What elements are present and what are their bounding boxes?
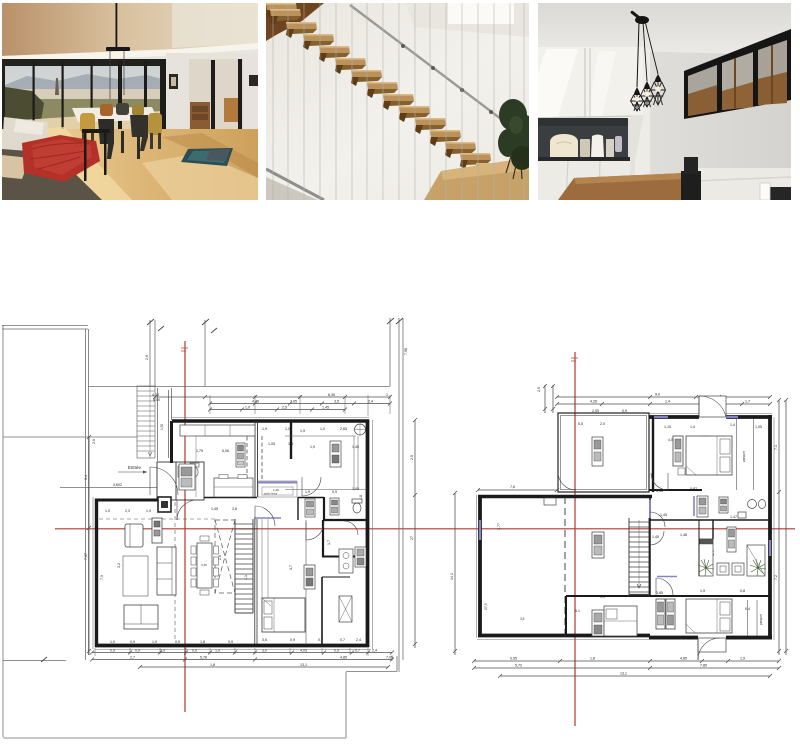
- svg-text:1,8: 1,8: [200, 640, 205, 644]
- svg-text:1,9: 1,9: [262, 427, 267, 431]
- svg-text:1,45: 1,45: [660, 513, 667, 517]
- svg-text:0,7: 0,7: [340, 638, 345, 642]
- svg-text:4,45: 4,45: [252, 400, 259, 404]
- svg-text:8,35: 8,35: [328, 393, 335, 397]
- svg-text:1,9: 1,9: [305, 490, 310, 494]
- svg-text:3,45: 3,45: [201, 563, 207, 567]
- svg-text:0,9: 0,9: [334, 649, 339, 653]
- svg-text:1,8: 1,8: [210, 663, 215, 667]
- svg-text:7,85: 7,85: [700, 664, 707, 668]
- svg-text:Entrée: Entrée: [128, 465, 141, 470]
- svg-text:7,6: 7,6: [510, 485, 515, 489]
- svg-text:1,05: 1,05: [268, 442, 275, 446]
- svg-text:4,00: 4,00: [153, 398, 160, 402]
- svg-text:3,0: 3,0: [262, 649, 267, 653]
- svg-text:7,2: 7,2: [774, 575, 778, 580]
- svg-text:4,26: 4,26: [590, 400, 597, 404]
- svg-text:1,50: 1,50: [160, 424, 164, 430]
- svg-text:7,05: 7,05: [386, 656, 393, 660]
- svg-text:3,8: 3,8: [232, 507, 237, 511]
- svg-text:2,7: 2,7: [130, 656, 135, 660]
- svg-text:1,8: 1,8: [590, 657, 595, 661]
- svg-text:0,9: 0,9: [192, 649, 197, 653]
- svg-text:5,1: 5,1: [575, 609, 580, 613]
- svg-text:2,6: 2,6: [145, 355, 149, 360]
- svg-text:1,0: 1,0: [320, 427, 325, 431]
- svg-text:1,9: 1,9: [310, 445, 315, 449]
- svg-text:3,6: 3,6: [520, 617, 525, 621]
- svg-text:0,9: 0,9: [110, 649, 115, 653]
- svg-text:13,1: 13,1: [620, 672, 627, 676]
- svg-text:3,5: 3,5: [334, 400, 339, 404]
- svg-text:4,85: 4,85: [680, 657, 687, 661]
- svg-text:4,85: 4,85: [340, 656, 347, 660]
- svg-text:1,0: 1,0: [110, 640, 115, 644]
- svg-text:2,5: 2,5: [282, 406, 287, 410]
- svg-text:7,98: 7,98: [404, 348, 408, 355]
- svg-text:5,78: 5,78: [200, 656, 207, 660]
- svg-text:1,05: 1,05: [755, 425, 762, 429]
- svg-text:0,95: 0,95: [510, 657, 517, 661]
- svg-text:13,1: 13,1: [300, 663, 307, 667]
- svg-text:1,47: 1,47: [730, 515, 737, 519]
- svg-text:5,06: 5,06: [222, 449, 229, 453]
- svg-text:2,5: 2,5: [410, 455, 414, 460]
- svg-text:27: 27: [410, 536, 414, 540]
- svg-text:7,0: 7,0: [100, 575, 104, 580]
- svg-text:7,1: 7,1: [774, 445, 778, 450]
- svg-text:0,7: 0,7: [355, 649, 360, 653]
- svg-text:2,0: 2,0: [92, 439, 96, 444]
- svg-text:1: 1: [386, 393, 388, 397]
- svg-text:7,05: 7,05: [290, 400, 297, 404]
- svg-text:1,45: 1,45: [211, 507, 218, 511]
- svg-text:2,65: 2,65: [340, 427, 347, 431]
- svg-text:1,9: 1,9: [160, 649, 165, 653]
- svg-text:1,0: 1,0: [105, 509, 110, 513]
- svg-text:1,7: 1,7: [745, 400, 750, 404]
- svg-text:1,9: 1,9: [215, 649, 220, 653]
- svg-text:1,4: 1,4: [690, 425, 695, 429]
- svg-text:1,7: 1,7: [327, 540, 331, 545]
- svg-text:1,77: 1,77: [497, 523, 501, 530]
- svg-text:parquet: parquet: [742, 451, 746, 462]
- svg-text:1,0: 1,0: [285, 427, 290, 431]
- svg-text:5,72: 5,72: [515, 664, 522, 668]
- svg-text:0,9: 0,9: [175, 640, 180, 644]
- svg-text:1,48: 1,48: [680, 533, 687, 537]
- svg-text:0,9: 0,9: [135, 649, 140, 653]
- svg-text:1,0: 1,0: [245, 406, 250, 410]
- svg-text:3,6: 3,6: [262, 638, 267, 642]
- svg-text:1,9: 1,9: [700, 589, 705, 593]
- svg-text:2,4: 2,4: [356, 638, 361, 642]
- svg-text:1,45: 1,45: [652, 535, 659, 539]
- svg-text:2,0: 2,0: [600, 422, 605, 426]
- svg-text:7,07: 7,07: [84, 553, 88, 560]
- svg-text:4,05: 4,05: [300, 649, 307, 653]
- svg-text:9,0: 9,0: [655, 393, 660, 397]
- svg-text:3,85: 3,85: [656, 591, 663, 595]
- svg-text:14,1: 14,1: [450, 573, 454, 580]
- svg-text:2,0: 2,0: [537, 387, 541, 392]
- svg-text:1,9: 1,9: [300, 429, 305, 433]
- svg-text:2,3: 2,3: [125, 509, 130, 513]
- svg-text:4,5: 4,5: [668, 438, 673, 442]
- svg-text:1,40: 1,40: [273, 488, 279, 492]
- svg-text:atelier fenetr: atelier fenetr: [264, 493, 277, 496]
- svg-text:1,4: 1,4: [730, 423, 735, 427]
- svg-text:0,9: 0,9: [130, 640, 135, 644]
- svg-text:1,45: 1,45: [322, 406, 329, 410]
- svg-text:1,9: 1,9: [740, 657, 745, 661]
- svg-text:2,4: 2,4: [372, 649, 377, 653]
- svg-text:4,03: 4,03: [152, 393, 159, 397]
- svg-text:0,8: 0,8: [740, 589, 745, 593]
- svg-text:3,4: 3,4: [84, 475, 88, 480]
- svg-text:1,9: 1,9: [152, 640, 157, 644]
- svg-text:3,2: 3,2: [117, 563, 121, 568]
- svg-text:1,10: 1,10: [664, 425, 671, 429]
- svg-text:5,5: 5,5: [578, 422, 583, 426]
- svg-text:1,9: 1,9: [146, 509, 151, 513]
- svg-text:3,7: 3,7: [289, 565, 293, 570]
- svg-text:3,602: 3,602: [113, 483, 122, 487]
- svg-text:0,9: 0,9: [332, 490, 337, 494]
- svg-text:2,4: 2,4: [368, 400, 373, 404]
- svg-text:parquet: parquet: [759, 614, 763, 625]
- svg-text:0,9: 0,9: [228, 640, 233, 644]
- svg-text:1,75: 1,75: [196, 449, 203, 453]
- svg-text:27,5: 27,5: [484, 603, 488, 610]
- svg-text:1,4: 1,4: [665, 400, 670, 404]
- svg-text:0,9: 0,9: [290, 638, 295, 642]
